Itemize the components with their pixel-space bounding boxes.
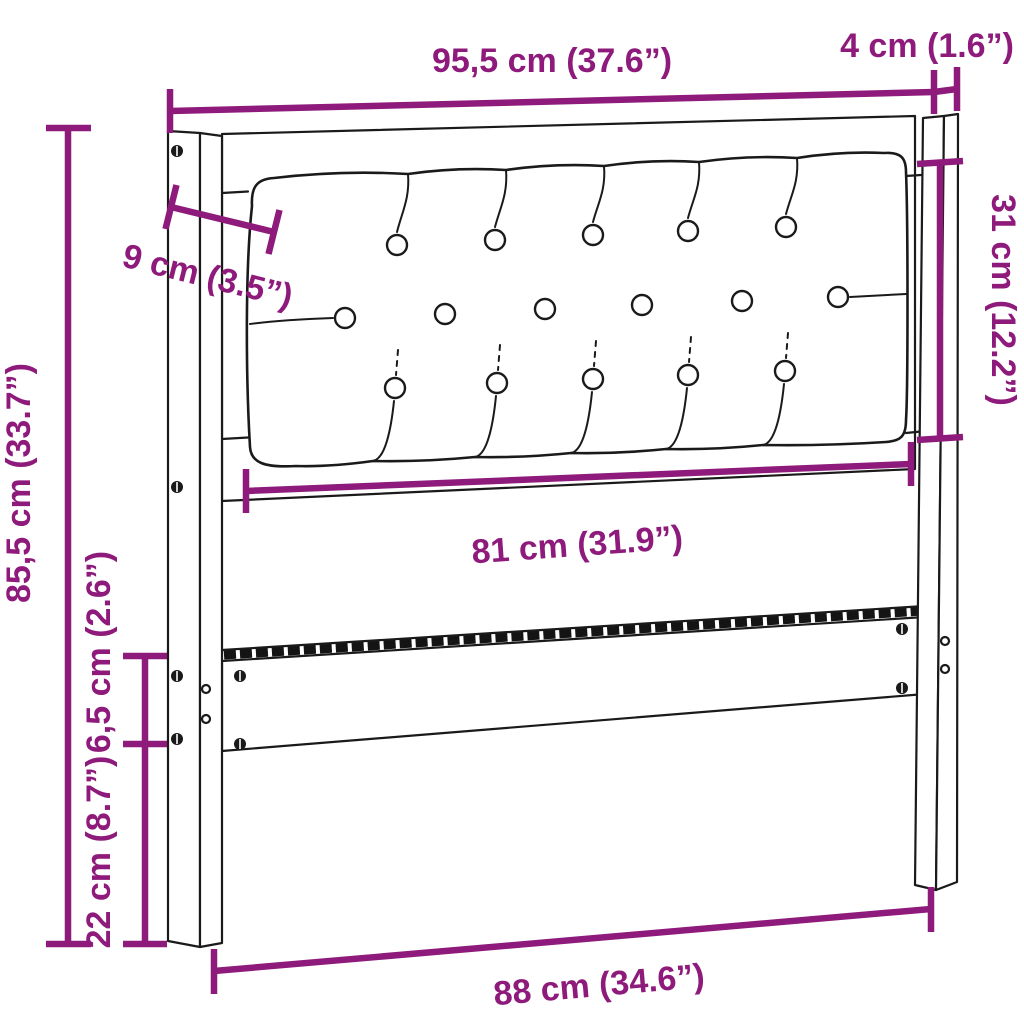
- dimension-line: [170, 92, 934, 111]
- dimension-label: 81 cm (31.9”): [470, 519, 684, 572]
- headboard-dimension-drawing: 95,5 cm (37.6”) 4 cm (1.6”) 31 cm (12.2”…: [0, 0, 1024, 1024]
- tufting-button: [775, 361, 795, 381]
- dimension-label: 22 cm (8.7”): [80, 756, 118, 949]
- pilot-hole: [941, 637, 949, 645]
- tufting-button: [535, 299, 555, 319]
- dimension-label: 88 cm (34.6”): [492, 957, 706, 1013]
- tufting-button: [632, 295, 652, 315]
- dimension-label: 4 cm (1.6”): [840, 27, 1014, 65]
- tufting-button: [732, 291, 752, 311]
- back-panel-edge-line: [222, 438, 248, 440]
- dimension-line: [934, 89, 957, 92]
- diagram-canvas: 95,5 cm (37.6”) 4 cm (1.6”) 31 cm (12.2”…: [0, 0, 1024, 1024]
- tufting-button: [387, 235, 407, 255]
- dimension-line: [214, 909, 931, 971]
- tufting-button: [678, 365, 698, 385]
- dimension-label: 85,5 cm (33.7”): [0, 363, 38, 603]
- back-panel-edge-line: [906, 175, 921, 176]
- tufting-button: [776, 217, 796, 237]
- tufting-button: [678, 221, 698, 241]
- back-panel-edge-line: [222, 192, 248, 194]
- tufting-button: [583, 225, 603, 245]
- dim-rail-offset: 6,5 cm (2.6”): [80, 551, 167, 753]
- tufting-button: [385, 378, 405, 398]
- tufting-button: [435, 304, 455, 324]
- tufting-button: [485, 230, 505, 250]
- lower-rail-face: [222, 617, 925, 751]
- tufting-button: [583, 369, 603, 389]
- tufting-button: [487, 373, 507, 393]
- dim-total-height: 85,5 cm (33.7”): [0, 128, 91, 944]
- pilot-hole: [202, 685, 210, 693]
- tufting-button: [335, 308, 355, 328]
- cushion: [247, 153, 908, 467]
- dim-bottom-width: 88 cm (34.6”): [214, 887, 931, 1013]
- dimension-tick: [917, 437, 963, 440]
- dimension-tick: [917, 161, 963, 164]
- dimension-label: 6,5 cm (2.6”): [80, 551, 118, 753]
- lower-rail: [222, 606, 925, 751]
- dim-post-depth: 4 cm (1.6”): [840, 27, 1014, 111]
- pilot-hole: [202, 715, 210, 723]
- dim-leg-height: 22 cm (8.7”): [80, 744, 167, 948]
- tufting-button: [828, 287, 848, 307]
- right-post: [915, 114, 958, 890]
- dimension-label: 31 cm (12.2”): [984, 194, 1022, 406]
- pilot-hole: [941, 665, 949, 673]
- dimension-label: 95,5 cm (37.6”): [432, 42, 672, 80]
